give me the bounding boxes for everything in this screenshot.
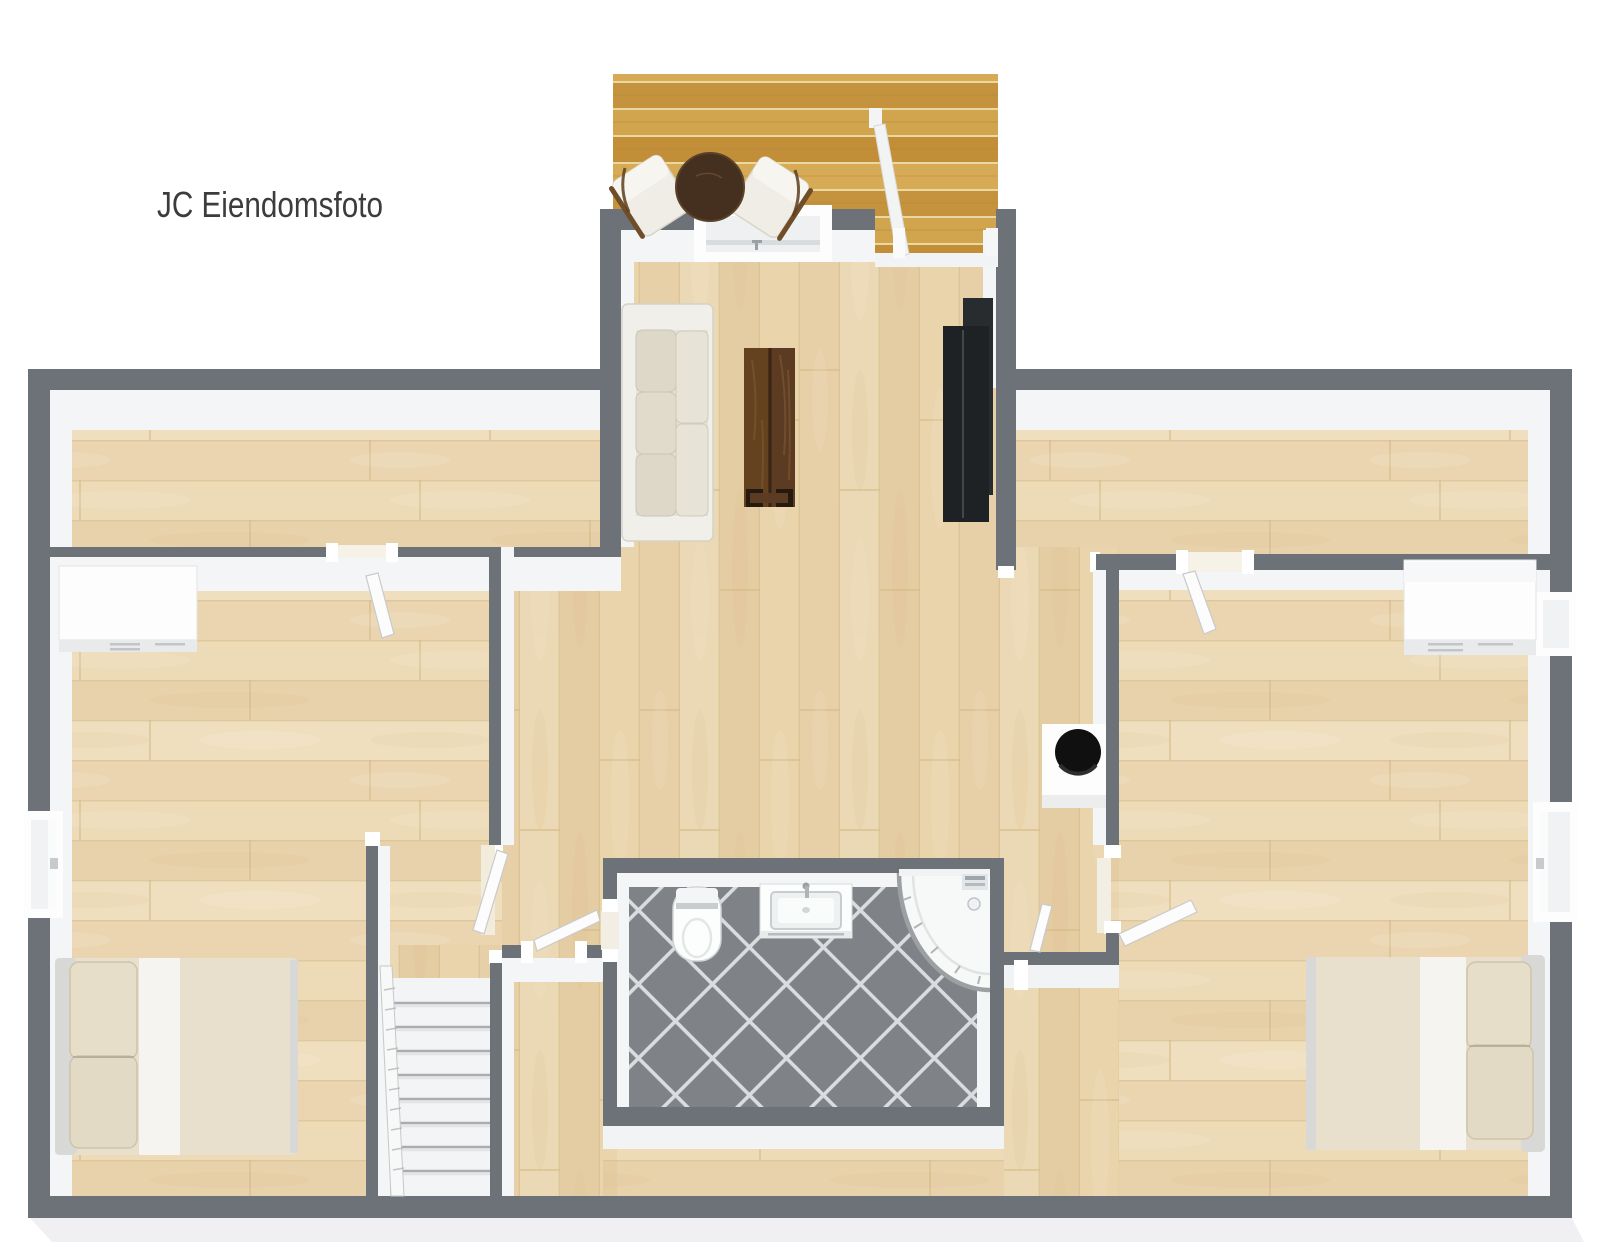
svg-text:JC Eiendomsfoto: JC Eiendomsfoto <box>157 184 383 225</box>
